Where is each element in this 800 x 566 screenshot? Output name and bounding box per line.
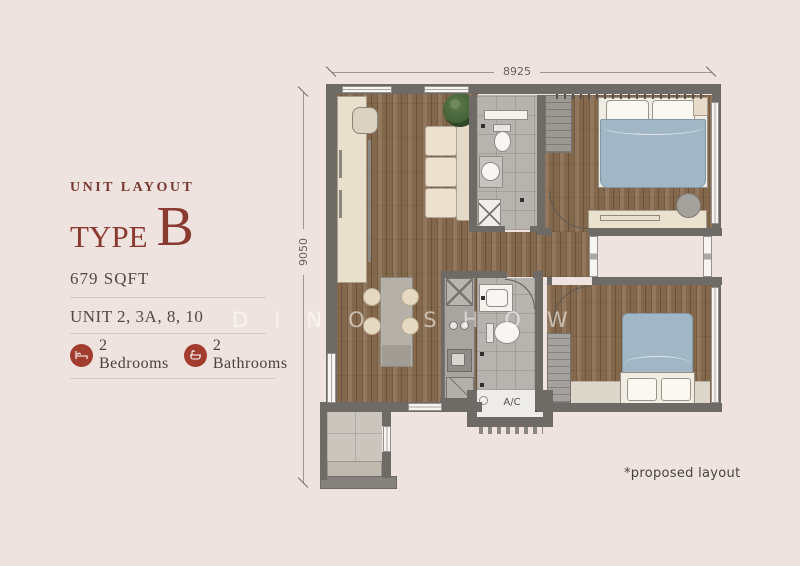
ac-louvers <box>479 427 543 434</box>
sofa-cushion-1 <box>425 126 457 156</box>
basin-1-bowl <box>481 162 500 181</box>
entry-door-leaf <box>383 426 391 452</box>
wall-bath1-right <box>537 95 545 235</box>
bed-2-pillow-right <box>661 378 691 401</box>
bath-icon <box>184 344 207 367</box>
floor-drain-1 <box>481 124 485 128</box>
bed-2-pillow-left <box>627 378 657 401</box>
window-top-1 <box>342 86 392 93</box>
wall-foyer-right-lower <box>382 452 391 478</box>
wall-ac-bottom <box>467 417 553 427</box>
divider-2 <box>70 333 266 334</box>
dining-chair-2 <box>401 288 419 306</box>
dining-table-end <box>382 345 411 366</box>
kitchen-sink-basin <box>451 353 465 366</box>
vanity-desk-tray <box>600 215 660 221</box>
wall-foyer-left <box>320 402 327 480</box>
foyer-landing <box>327 461 382 477</box>
dimension-line-left <box>303 92 304 483</box>
wall-bath1-bottom-a <box>477 226 505 232</box>
divider-3 <box>70 378 275 379</box>
bathroom-1-shelf <box>484 110 528 120</box>
counter-handle-2 <box>339 190 342 218</box>
dining-chair-1 <box>363 288 381 306</box>
counter-handle-1 <box>339 150 342 178</box>
wall-bath1-bottom-b <box>530 226 537 232</box>
watermark: DINO SHOW <box>232 308 652 332</box>
bed-icon <box>70 344 93 367</box>
sofa-cushion-3 <box>425 188 457 218</box>
eyebrow-title: UNIT LAYOUT <box>70 180 290 196</box>
bathrooms-label: 2 Bathrooms <box>213 337 290 373</box>
floor-drain-3 <box>480 352 484 356</box>
wall-bedroom1-bottom-stub <box>545 228 551 236</box>
nightstand-1 <box>693 97 708 116</box>
sofa-cushion-2 <box>425 157 457 187</box>
basin-2-faucet <box>481 296 485 300</box>
wall-kitchen-top <box>441 271 507 278</box>
brochure-page: UNIT LAYOUT TYPE B 679 SQFT UNIT 2, 3A, … <box>0 0 800 566</box>
type-title: TYPE B <box>70 196 290 252</box>
proposed-layout-note: *proposed layout <box>624 466 741 481</box>
unit-numbers: UNIT 2, 3A, 8, 10 <box>70 307 203 327</box>
wall-foyer-right-upper <box>382 409 391 426</box>
airwell-frame-left <box>589 236 598 277</box>
ac-label: A/C <box>495 397 529 411</box>
bedrooms-label: 2 Bedrooms <box>99 337 172 373</box>
dimension-height-label: 9050 <box>297 229 311 275</box>
tv-console-line <box>368 140 371 262</box>
airwell-frame-right <box>703 236 712 277</box>
toilet-1-bowl <box>494 131 511 152</box>
wall-kitchen-left <box>441 273 444 400</box>
dimension-width-label: 8925 <box>494 65 540 79</box>
window-top-2 <box>424 86 469 93</box>
wall-bath1-left <box>469 95 477 232</box>
bed-1-duvet-fold <box>602 119 704 135</box>
type-letter: B <box>157 204 194 252</box>
area-label: 679 SQFT <box>70 269 149 289</box>
plant-highlight <box>450 99 460 109</box>
foyer-floor <box>327 409 382 462</box>
floor-drain-4 <box>480 383 484 387</box>
bed-2-duvet-fold <box>624 356 691 372</box>
floor-drain-2 <box>520 198 524 202</box>
wall-bedroom1-bottom <box>588 228 722 236</box>
wall-bedroom2-top-stub <box>547 277 552 285</box>
wall-bedroom2-top <box>592 277 722 285</box>
window-bedroom-1 <box>711 102 719 224</box>
bedroom1-top-vent-ticks <box>556 94 708 99</box>
shower-1 <box>478 199 501 229</box>
divider-1 <box>70 297 266 298</box>
features-row: 2 Bedrooms 2 Bathrooms <box>70 343 290 367</box>
window-bedroom-2 <box>711 287 719 403</box>
wardrobe-1 <box>545 95 572 153</box>
wall-bath2-right <box>535 271 543 411</box>
stove-icon <box>446 278 473 306</box>
info-panel: UNIT LAYOUT TYPE B 679 SQFT UNIT 2, 3A, … <box>70 180 290 196</box>
type-word: TYPE <box>70 221 148 252</box>
wall-bedroom2-bottom <box>537 403 722 412</box>
window-left-lower <box>327 353 336 403</box>
vanity-stool <box>676 193 701 218</box>
window-living-bottom <box>408 403 442 411</box>
counter-sink-basin <box>352 107 378 134</box>
